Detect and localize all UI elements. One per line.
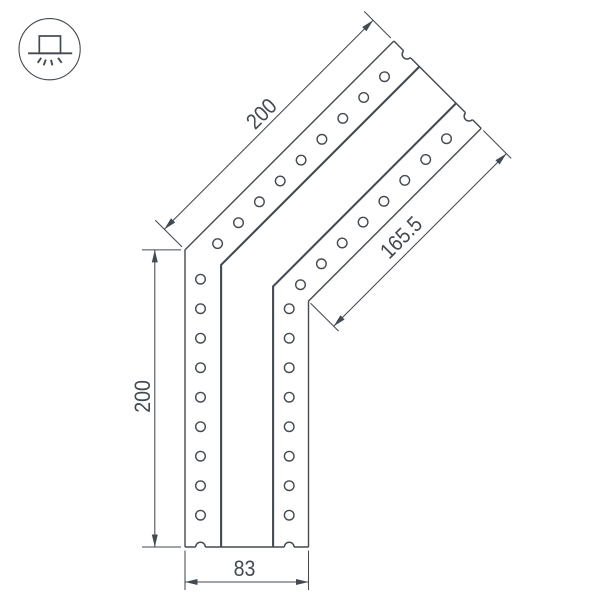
svg-text:200: 200 <box>130 380 155 413</box>
svg-text:83: 83 <box>234 556 256 581</box>
